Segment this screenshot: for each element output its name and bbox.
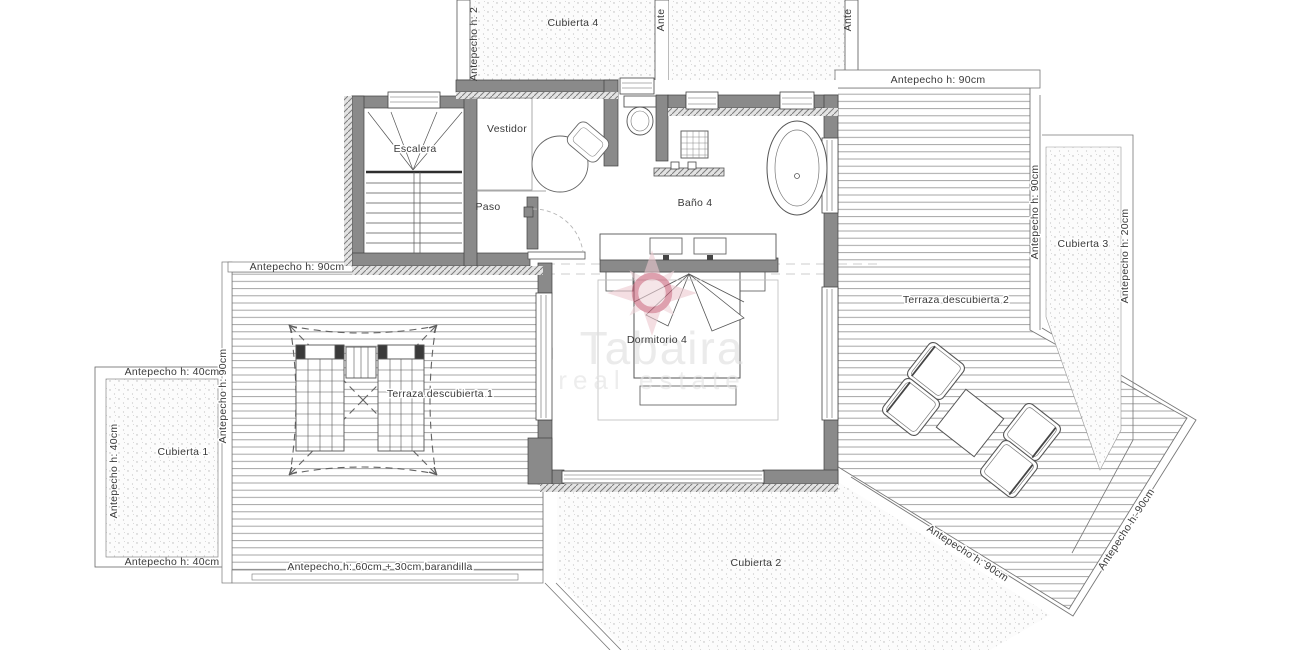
label-vestidor: Vestidor — [487, 123, 527, 135]
window — [536, 293, 552, 420]
label-antepecho-clipped: Ante — [655, 9, 667, 32]
window — [388, 92, 440, 108]
label-cubierta-4: Cubierta 4 — [548, 17, 599, 29]
label-antepecho-terraza1-top: Antepecho h: 90cm — [250, 261, 345, 273]
watermark-tagline: real estate — [558, 365, 745, 395]
window — [620, 78, 654, 94]
label-terraza-2: Terraza descubierta 2 — [903, 294, 1009, 306]
label-antepecho-cubierta1-left: Antepecho h: 40cm — [108, 424, 120, 519]
sun-lounger — [296, 345, 344, 451]
label-cubierta-3: Cubierta 3 — [1058, 238, 1109, 250]
window — [686, 92, 718, 109]
label-dormitorio-4: Dormitorio 4 — [627, 334, 687, 346]
label-bano-4: Baño 4 — [678, 197, 713, 209]
label-terraza-1: Terraza descubierta 1 — [387, 388, 493, 400]
bathtub — [767, 121, 827, 215]
label-antepecho-cubierta1-top: Antepecho h: 40cm — [125, 366, 220, 378]
window — [780, 92, 814, 109]
floor-plan-page: Tabaira real estate Cubierta 4 Antepecho… — [0, 0, 1300, 650]
nightstand — [738, 272, 765, 291]
vanity-sinks — [600, 234, 776, 260]
label-antepecho-barandilla: Antepecho h: 60cm + 30cm barandilla — [287, 561, 472, 573]
window — [562, 471, 764, 483]
label-cubierta-2: Cubierta 2 — [731, 557, 782, 569]
label-escalera: Escalera — [394, 143, 437, 155]
cubierta-4-area — [457, 0, 669, 82]
floor-plan-drawing: Tabaira real estate Cubierta 4 Antepecho… — [0, 0, 1300, 650]
label-antepecho-clipped: Ante — [842, 9, 854, 32]
label-antepecho-cubierta3: Antepecho h: 20cm — [1119, 209, 1131, 304]
side-table — [346, 347, 376, 378]
window — [822, 287, 838, 420]
label-antepecho-terraza1-left: Antepecho h: 90cm — [217, 349, 229, 444]
label-antepecho-terraza2-right: Antepecho h: 90cm — [1029, 165, 1041, 260]
label-antepecho-cubierta1-bottom: Antepecho h: 40cm — [125, 556, 220, 568]
shower-drain — [681, 131, 708, 158]
label-antepecho-top-left: Antepecho h: 2 — [468, 7, 480, 81]
label-paso: Paso — [476, 201, 501, 213]
label-cubierta-1: Cubierta 1 — [158, 446, 209, 458]
label-antepecho-terraza2-top: Antepecho h: 90cm — [891, 74, 986, 86]
